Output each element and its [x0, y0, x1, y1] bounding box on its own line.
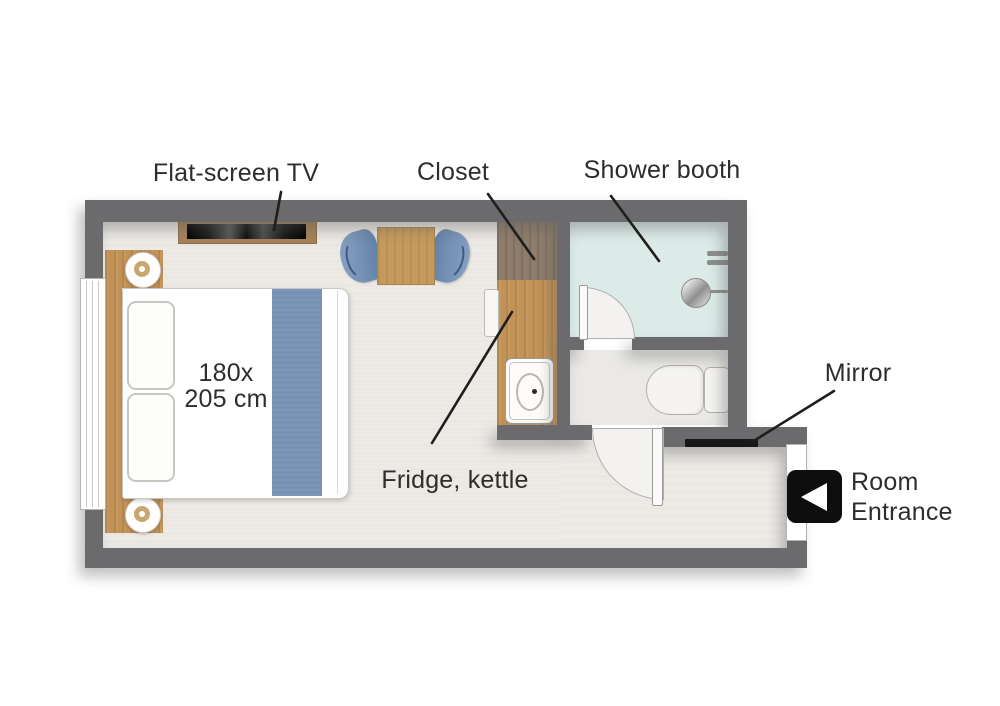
bathroom-door-leaf [652, 428, 663, 506]
arrow-left-icon [801, 483, 827, 511]
window-pane-line [92, 281, 93, 507]
window-pane-line [98, 281, 99, 507]
window-pane-line [86, 281, 87, 507]
shower-door-leaf [579, 285, 588, 340]
room-entrance-arrow-icon [787, 470, 842, 523]
window [80, 278, 106, 510]
floor-plan: Flat-screen TV Closet Shower booth Mirro… [0, 0, 1000, 706]
shower-door-swing [583, 287, 635, 339]
mirror [685, 439, 758, 447]
